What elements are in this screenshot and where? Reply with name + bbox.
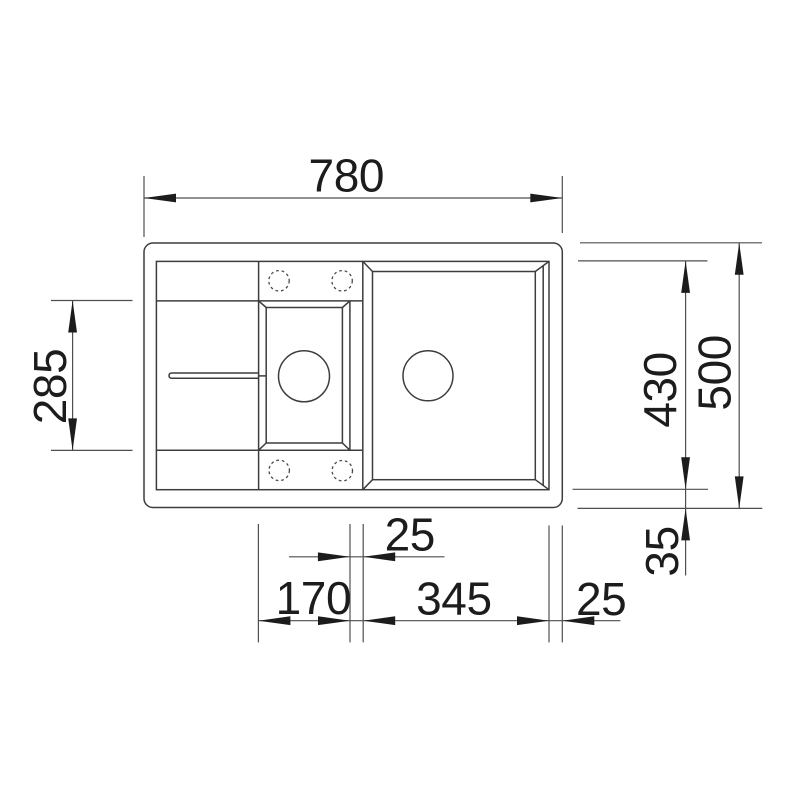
svg-text:25: 25 [385, 509, 435, 561]
svg-text:500: 500 [689, 335, 741, 411]
svg-text:285: 285 [24, 349, 76, 425]
svg-text:345: 345 [416, 573, 492, 625]
svg-text:170: 170 [276, 572, 352, 624]
svg-text:35: 35 [636, 526, 688, 576]
svg-text:430: 430 [634, 352, 686, 428]
svg-text:780: 780 [309, 150, 385, 202]
svg-text:25: 25 [576, 573, 626, 625]
